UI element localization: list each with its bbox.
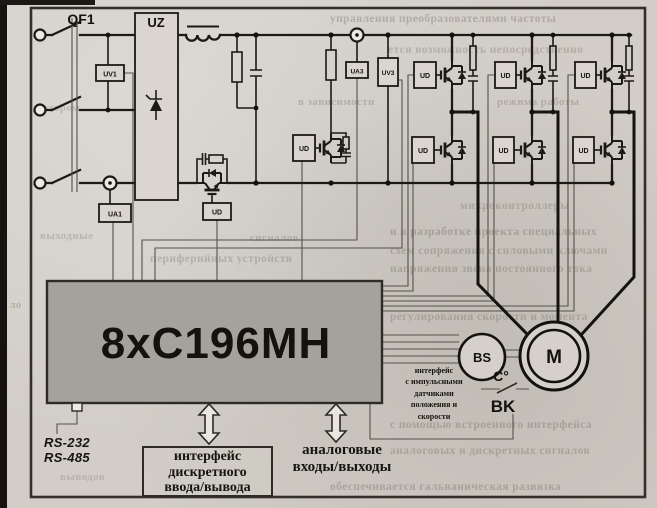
brake-resistor bbox=[326, 35, 336, 133]
ud-label: UD bbox=[420, 73, 430, 80]
serial-port-connector bbox=[72, 403, 82, 411]
rs232-label: RS-232 bbox=[44, 435, 124, 450]
pulse-iface-line: положения и bbox=[392, 399, 476, 410]
driver-ud-leg2-top: UD bbox=[495, 62, 516, 88]
driver-ud-brake: UD bbox=[293, 135, 315, 161]
leg-snubbers bbox=[468, 35, 634, 112]
igbt-series-chopper bbox=[197, 169, 227, 199]
sensor-uv3: UV3 bbox=[378, 58, 398, 86]
io-arrows bbox=[199, 404, 346, 444]
discrete-io-line: интерфейс bbox=[144, 449, 271, 465]
ua3-label: UA3 bbox=[350, 69, 363, 76]
ud-label: UD bbox=[498, 148, 508, 155]
terminal-phase-b bbox=[35, 105, 46, 116]
ud-label: UD bbox=[299, 146, 309, 153]
scan-edge-top bbox=[0, 0, 95, 5]
input-terminals bbox=[35, 30, 46, 189]
ud-label: UD bbox=[418, 148, 428, 155]
rs485-label: RS-485 bbox=[44, 450, 124, 465]
analog-io-line: входы/выходы bbox=[270, 459, 414, 476]
breaker-blades bbox=[52, 18, 80, 192]
serial-interface-labels: RS-232 RS-485 bbox=[44, 435, 124, 465]
pulse-iface-line: скорости bbox=[392, 411, 476, 422]
igbt-leg2-bottom bbox=[516, 135, 546, 165]
ud-label: UD bbox=[580, 73, 590, 80]
motor-m: M bbox=[520, 322, 588, 390]
motor-label: M bbox=[546, 347, 562, 368]
pulse-iface-line: с импульсными bbox=[392, 376, 476, 387]
pulse-iface-line: датчиками bbox=[392, 388, 476, 399]
igbt-brake-chopper bbox=[315, 133, 345, 163]
ud-label: UD bbox=[500, 73, 510, 80]
driver-ud-leg3-bottom: UD bbox=[573, 137, 596, 163]
driver-ud-leg2-bottom: UD bbox=[493, 137, 516, 163]
scan-edge-left bbox=[0, 0, 7, 508]
ua1-label: UA1 bbox=[108, 212, 122, 219]
mcu-label: 8xC196MH bbox=[101, 319, 332, 368]
ud-label: UD bbox=[212, 210, 222, 217]
igbt-leg2-top bbox=[516, 60, 546, 90]
igbt-leg3-bottom bbox=[596, 135, 626, 165]
driver-ud-leg1-top: UD bbox=[414, 62, 436, 88]
bs-label: BS bbox=[473, 350, 491, 365]
discrete-io-line: ввода/вывода bbox=[144, 480, 271, 496]
discrete-io-line: дискретного bbox=[144, 465, 271, 481]
rectifier-label: UZ bbox=[147, 15, 164, 30]
mcu-block: 8xC196MH bbox=[47, 281, 382, 411]
terminal-phase-a bbox=[35, 30, 46, 41]
rectifier-uz: UZ bbox=[135, 13, 178, 200]
scanned-book-page: управления преобразователями частотыется… bbox=[0, 0, 657, 508]
terminal-phase-c bbox=[35, 178, 46, 189]
driver-ud-leg1-bottom: UD bbox=[412, 137, 436, 163]
driver-ud-leg3-top: UD bbox=[575, 62, 596, 88]
igbt-leg1-bottom bbox=[436, 135, 466, 165]
bk-label: BK bbox=[491, 397, 516, 416]
ud-label: UD bbox=[578, 148, 588, 155]
frequency-converter-circuit-diagram: UZ UV1 UA1 UA3 UV3 bbox=[0, 0, 657, 508]
breaker-label: QF1 bbox=[67, 11, 94, 27]
discrete-io-arrow-icon bbox=[199, 404, 219, 444]
sensor-uv1: UV1 bbox=[96, 65, 124, 81]
igbt-leg3-top bbox=[596, 60, 626, 90]
uv3-label: UV3 bbox=[382, 70, 395, 77]
analog-io-caption: аналоговые входы/выходы bbox=[270, 442, 414, 478]
analog-io-arrow-icon bbox=[326, 404, 346, 442]
uv1-label: UV1 bbox=[103, 72, 117, 79]
pulse-sensor-interface-caption: интерфейс с импульсными датчиками положе… bbox=[392, 365, 476, 425]
temperature-label: C° bbox=[493, 368, 509, 384]
pulse-iface-line: интерфейс bbox=[392, 365, 476, 376]
driver-ud-series-chopper: UD bbox=[203, 203, 231, 220]
inverter-igbts bbox=[197, 60, 626, 203]
discrete-io-box: интерфейс дискретного ввода/вывода bbox=[142, 446, 273, 497]
analog-io-line: аналоговые bbox=[270, 442, 414, 459]
igbt-leg1-top bbox=[436, 60, 466, 90]
